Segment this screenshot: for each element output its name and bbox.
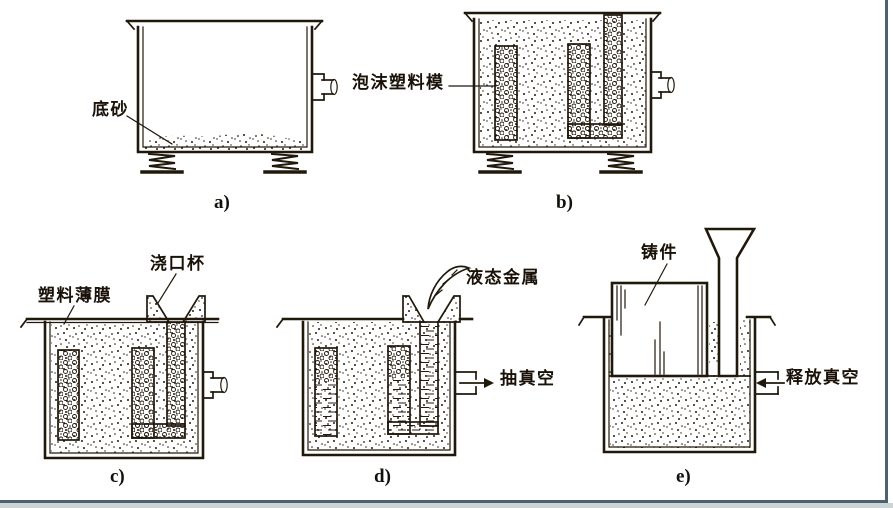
label-draw-vacuum: 抽真空 (500, 370, 556, 389)
caption-e: e) (676, 466, 691, 488)
foam-pattern-left (58, 350, 79, 440)
pattern-left-half-filled (315, 348, 337, 436)
sand-column-right (740, 320, 750, 376)
pattern-mid-half-filled (388, 346, 410, 434)
metal-sprue (420, 322, 438, 426)
metal-runner (388, 422, 438, 434)
label-plastic-film: 塑料薄膜 (38, 287, 112, 306)
label-foam-pattern: 泡沫塑料模 (352, 74, 445, 93)
caption-c: c) (110, 466, 125, 488)
vacuum-pipe-b-icon (651, 72, 674, 98)
flask-a-outline (138, 27, 312, 152)
panel-e-drawing (579, 229, 784, 452)
arrow-left-icon (756, 378, 784, 388)
label-bottom-sand: 底砂 (92, 101, 129, 120)
spring-icon (265, 154, 305, 172)
panel-d-drawing (277, 266, 494, 455)
caption-b: b) (556, 192, 573, 214)
sand-fill-e (610, 374, 750, 448)
label-liquid-metal: 液态金属 (466, 269, 540, 288)
leader-line-pouring-cup (158, 274, 176, 303)
panel-a-drawing (127, 21, 337, 172)
label-casting: 铸件 (641, 244, 678, 263)
sand-column-mid (709, 322, 718, 364)
slide-border-bottom (0, 500, 888, 503)
pour-stream (428, 266, 469, 309)
caption-a: a) (214, 192, 230, 214)
spring-icon (601, 154, 641, 172)
leader-line-plastic-film (64, 306, 74, 324)
spring-icon (480, 154, 520, 172)
label-pouring-cup: 浇口杯 (150, 255, 206, 274)
vacuum-pipe-a-icon (312, 74, 337, 100)
foam-runner (568, 124, 622, 138)
casting-process-figure: 底砂 泡沫塑料模 塑料薄膜 浇口杯 液态金属 抽真空 铸件 释放真空 a) b)… (0, 0, 893, 508)
foam-runner (132, 424, 185, 438)
slide-border-right (885, 0, 888, 503)
foam-pattern-left (495, 46, 517, 140)
caption-d: d) (374, 466, 391, 488)
vacuum-pipe-c-icon (203, 372, 227, 398)
spring-icon (142, 154, 182, 172)
slide-border-shadow (0, 503, 893, 508)
label-release-vacuum: 释放真空 (786, 369, 860, 388)
line-art (0, 0, 893, 508)
foam-sprue (167, 322, 185, 426)
arrow-right-icon (460, 378, 494, 388)
casting-body (612, 283, 707, 376)
panel-b-drawing (449, 13, 674, 172)
foam-sprue (604, 15, 622, 125)
